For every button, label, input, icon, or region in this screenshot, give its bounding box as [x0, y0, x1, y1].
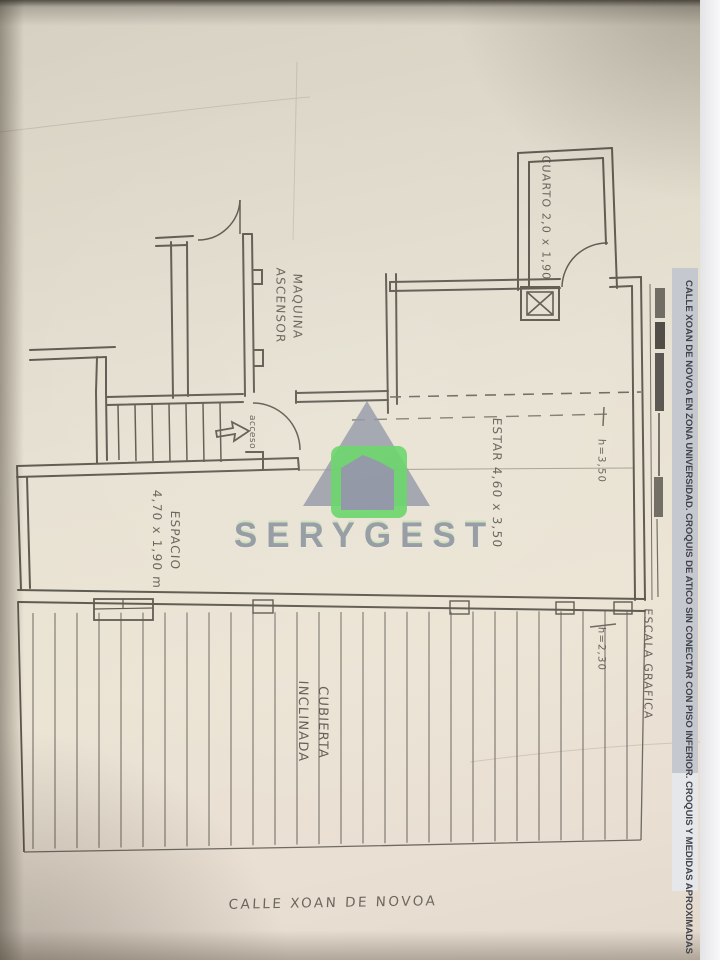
- room-label-espacio-line2: 4,70 x 1,90 m: [148, 489, 166, 589]
- watermark-brand-text: SERYGEST: [225, 516, 495, 556]
- annotation-height-cubierta: h=2,30: [596, 627, 607, 672]
- room-label-maquina-line1: MAQUINA: [288, 268, 305, 345]
- room-label-espacio-line1: ESPACIO: [166, 490, 184, 590]
- page-background-edge: [700, 0, 720, 960]
- room-label-maquina-line2: ASCENSOR: [271, 267, 288, 344]
- listing-photo-page: { "banner": { "text": "CALLE XOAN DE NOV…: [0, 0, 720, 960]
- room-label-cuarto: CUARTO 2,0 x 1,90: [540, 155, 553, 281]
- room-label-cubierta-line1: CUBIERTA: [312, 681, 332, 764]
- room-label-cubierta: CUBIERTA INCLINADA: [292, 680, 332, 764]
- annotation-height-estar: h=3,50: [596, 439, 607, 484]
- elevator-shaft-symbol: [521, 287, 559, 320]
- room-label-espacio: ESPACIO 4,70 x 1,90 m: [148, 489, 184, 590]
- watermark-logo: [303, 401, 430, 518]
- room-label-cubierta-line2: INCLINADA: [292, 680, 312, 763]
- annotation-escala-grafica: ESCALA GRAFICA: [642, 608, 655, 720]
- room-label-maquina-ascensor: MAQUINA ASCENSOR: [271, 267, 306, 345]
- annotation-acceso: acceso: [247, 415, 257, 450]
- side-banner-caption: CALLE XOAN DE NOVOA EN ZONA UNIVERSIDAD.…: [683, 280, 694, 954]
- stair-steps: [118, 403, 221, 462]
- floorplan-photo: CUARTO 2,0 x 1,90 MAQUINA ASCENSOR ESTAR…: [0, 0, 700, 960]
- graphic-scale-bar: [650, 284, 665, 600]
